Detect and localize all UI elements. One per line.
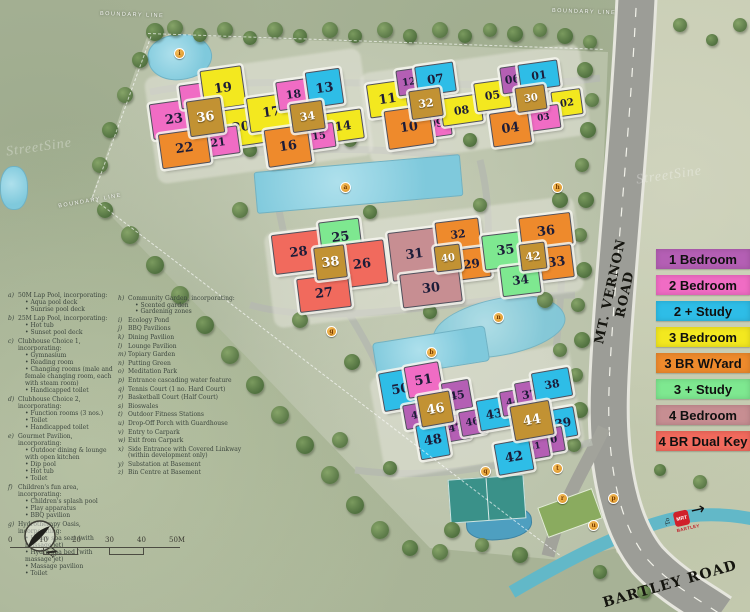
tree — [403, 29, 417, 43]
tree — [473, 198, 487, 212]
arrow-right-icon: → — [690, 503, 706, 516]
facility-w: w)Exit from Carpark — [118, 438, 246, 445]
amenity-marker-q: q — [480, 466, 491, 477]
tree — [377, 22, 393, 38]
unit-type-legend: 1 Bedroom2 Bedroom2 + Study3 Bedroom3 BR… — [656, 249, 750, 457]
scale-tick-40: 40 — [137, 536, 146, 544]
site-plan-canvas: 2319203621221718133414151611120732090810… — [0, 0, 750, 612]
facility-p: p)Entrance cascading water feature — [118, 378, 246, 385]
facility-x: x)Side Entrance with Covered Linkway (wi… — [118, 447, 246, 460]
boundary-label-1: BOUNDARY LINE — [552, 8, 616, 16]
tree — [706, 34, 718, 46]
tree — [321, 466, 339, 484]
tree — [246, 376, 264, 394]
legend-item-3-study: 3 + Study — [656, 379, 750, 399]
tree — [344, 354, 360, 370]
tree — [580, 122, 596, 138]
tree — [293, 29, 307, 43]
facility-m: m)Topiary Garden — [118, 352, 246, 359]
tree — [371, 521, 389, 539]
tree — [583, 35, 597, 49]
tree — [332, 432, 348, 448]
building-block-32: 32 — [408, 87, 444, 120]
tree — [402, 540, 418, 556]
tree — [578, 192, 594, 208]
tree — [483, 23, 497, 37]
facility-u: u)Drop-Off Porch with Guardhouse — [118, 421, 246, 428]
legend-item-2-study: 2 + Study — [656, 301, 750, 321]
tree — [673, 18, 687, 32]
scale-tick-50M: 50M — [169, 536, 185, 544]
building-block-04: 04 — [489, 108, 532, 147]
tree — [322, 22, 338, 38]
tree — [432, 544, 448, 560]
building-block-38: 38 — [313, 244, 348, 281]
amenity-marker-i: i — [174, 48, 185, 59]
legend-item-2-bedroom: 2 Bedroom — [656, 275, 750, 295]
building-block-40: 40 — [434, 244, 463, 273]
amenity-marker-n: n — [493, 312, 504, 323]
scale-tick-0: 0 — [8, 536, 12, 544]
tree — [557, 28, 573, 44]
tree — [444, 522, 460, 538]
facility-s: s)Bioswales — [118, 404, 246, 411]
building-block-48: 48 — [415, 421, 451, 461]
tree — [423, 305, 437, 319]
facility-z: z)Bin Centre at Basement — [118, 470, 246, 477]
legend-item-3-br-w-yard: 3 BR W/Yard — [656, 353, 750, 373]
facility-a: a)50M Lap Pool, incorporating:Aqua pool … — [8, 292, 114, 313]
tree — [654, 464, 666, 476]
tree — [693, 475, 707, 489]
watermark-left: StreetSine — [5, 135, 73, 160]
tree — [243, 31, 257, 45]
tree — [575, 158, 589, 172]
amenity-marker-h: h — [552, 182, 563, 193]
amenity-marker-t: t — [552, 463, 563, 474]
facility-r: r)Basketball Court (Half Court) — [118, 395, 246, 402]
amenity-marker-p: p — [608, 493, 619, 504]
tree — [593, 565, 607, 579]
scale-tick-10: 10 — [39, 536, 48, 544]
facility-v: v)Entry to Carpark — [118, 430, 246, 437]
tree — [733, 18, 747, 32]
tree — [232, 202, 248, 218]
facility-h: h)Community Garden, incorporating:Scente… — [118, 296, 246, 316]
facility-l: l)Lounge Pavilion — [118, 344, 246, 351]
facility-i: i)Ecology Pond — [118, 318, 246, 325]
amenity-marker-b: b — [426, 347, 437, 358]
facility-c: c)Clubhouse Choice 1, incorporating:Gymn… — [8, 338, 114, 394]
tree — [507, 26, 523, 42]
building-block-30: 30 — [514, 84, 547, 113]
facility-b: b)25M Lap Pool, incorporating:Hot tubSun… — [8, 315, 114, 336]
scale-bar: 01020304050M — [6, 536, 201, 562]
tree — [574, 332, 590, 348]
tree — [537, 292, 553, 308]
facility-t: t)Outdoor Fitness Stations — [118, 412, 246, 419]
building-block-30: 30 — [399, 267, 463, 308]
tree — [271, 406, 289, 424]
tree — [512, 547, 528, 563]
tree — [383, 461, 397, 475]
building-block-34: 34 — [289, 100, 326, 133]
facility-o: o)Meditation Park — [118, 369, 246, 376]
tree — [432, 22, 448, 38]
tree — [567, 438, 581, 452]
tree — [569, 368, 583, 382]
tree — [146, 256, 164, 274]
legend-item-4-br-dual-key: 4 BR Dual Key — [656, 431, 750, 451]
mrt-to-label: To — [664, 517, 672, 526]
tree — [346, 496, 364, 514]
facility-j: j)BBQ Pavilions — [118, 326, 246, 333]
tree — [571, 298, 585, 312]
amenity-marker-g: g — [326, 326, 337, 337]
tree — [267, 22, 283, 38]
facility-n: n)Putting Green — [118, 361, 246, 368]
tree — [296, 436, 314, 454]
tree — [292, 312, 308, 328]
tree — [585, 93, 599, 107]
boundary-label-0: BOUNDARY LINE — [100, 11, 164, 19]
tree — [458, 29, 472, 43]
scale-segment — [109, 548, 144, 555]
facility-k: k)Dining Pavilion — [118, 335, 246, 342]
tree — [553, 343, 567, 357]
tree — [552, 192, 568, 208]
facilities-list-h-z: h)Community Garden, incorporating:Scente… — [118, 296, 246, 479]
amenity-marker-a: a — [340, 182, 351, 193]
tree — [121, 226, 139, 244]
facility-y: y)Substation at Basement — [118, 462, 246, 469]
tree — [363, 205, 377, 219]
amenity-marker-u: u — [588, 520, 599, 531]
building-block-42: 42 — [493, 438, 534, 476]
scale-segment — [43, 548, 78, 555]
tree — [576, 262, 592, 278]
legend-item-1-bedroom: 1 Bedroom — [656, 249, 750, 269]
facility-d: d)Clubhouse Choice 2, incorporating:Func… — [8, 396, 114, 431]
pond-west — [0, 166, 28, 210]
tree — [573, 228, 587, 242]
building-block-44: 44 — [509, 400, 554, 441]
tree — [577, 62, 593, 78]
tree — [533, 23, 547, 37]
legend-item-3-bedroom: 3 Bedroom — [656, 327, 750, 347]
scale-tick-30: 30 — [105, 536, 114, 544]
facility-q: q)Tennis Court (1 no. Hard Court) — [118, 387, 246, 394]
tree — [463, 133, 477, 147]
facility-e: e)Gourmet Pavilion, incorporating:Outdoo… — [8, 433, 114, 482]
scale-tick-20: 20 — [72, 536, 81, 544]
building-block-42: 42 — [518, 242, 547, 272]
tree — [475, 538, 489, 552]
amenity-marker-r: r — [557, 493, 568, 504]
scale-bar-line — [10, 547, 180, 548]
building-block-36: 36 — [186, 97, 226, 138]
legend-item-4-bedroom: 4 Bedroom — [656, 405, 750, 425]
building-block-46: 46 — [416, 390, 454, 427]
